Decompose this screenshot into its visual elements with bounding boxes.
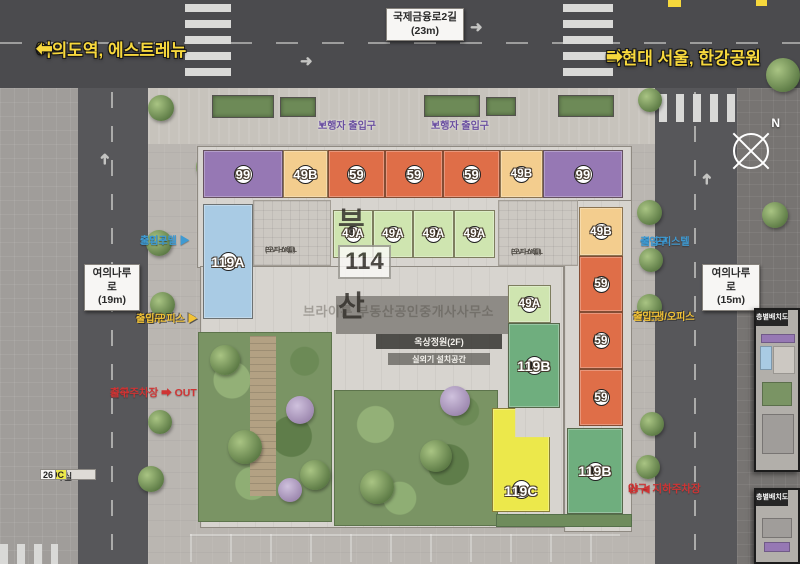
compass: N <box>729 129 773 173</box>
pedestrian-entrance-text: 보행자 출입구 <box>318 121 376 134</box>
right-arrow-icon: ➡ <box>606 44 623 69</box>
road-name-left: 여의나루로 (19m) <box>84 264 140 311</box>
road-name-text: 여의나루로 <box>707 267 755 294</box>
direction-right: 더현대 서울, 한강공원 ➡ <box>606 44 761 69</box>
direction-left: ⬅ 여의도역, 에스트레뉴 <box>36 36 186 61</box>
unit-14[interactable]: 1459 <box>579 256 623 312</box>
mini-block <box>762 414 794 454</box>
unit-type: 119A <box>211 254 245 270</box>
mini-block <box>762 382 792 406</box>
unit-type: 49A <box>423 228 445 240</box>
road-name-text: 여의나루로 <box>89 267 135 294</box>
unit-type: 49A <box>382 228 404 240</box>
mini-block <box>760 346 772 370</box>
unit-type: 59 <box>464 167 479 182</box>
unit-type: 119B <box>517 358 551 374</box>
floor-layout-panel-1[interactable]: 층별배치도 <box>754 308 800 472</box>
entrance-text: 출구 <box>110 387 129 400</box>
mini-block <box>761 334 795 343</box>
unit-15[interactable]: 1559 <box>579 312 623 369</box>
unit-11[interactable]: 1149A <box>413 210 454 258</box>
unit-type: 99 <box>236 167 251 182</box>
unit-3[interactable]: 349B <box>283 150 328 198</box>
unit-type: 49B <box>511 168 533 180</box>
unit-17[interactable]: 17119B <box>567 428 623 514</box>
unit-5[interactable]: 559 <box>385 150 443 198</box>
legend-count: 26 <box>40 469 56 480</box>
unit-16[interactable]: 1659 <box>579 369 623 426</box>
watermark-subtitle: 브라이튼 부동산공인중개사사무소 <box>303 301 517 320</box>
road-width-text: (23m) <box>391 25 459 39</box>
unit-type: 49B <box>590 226 612 238</box>
compass-north-label: N <box>771 116 780 130</box>
floor-layout-panel-2[interactable]: 층별배치도 <box>754 488 800 564</box>
panel-title: 층별배치도 <box>756 310 788 326</box>
watermark-logo: 114 <box>338 245 391 279</box>
direction-right-text: 더현대 서울, 한강공원 <box>606 44 761 69</box>
entrance-text: 입구 <box>628 483 647 496</box>
road-width-text: (19m) <box>89 294 135 308</box>
mini-block <box>773 346 795 374</box>
unit-2[interactable]: 299 <box>203 150 283 198</box>
unit-type: 59 <box>594 392 607 404</box>
left-arrow-icon: ⬅ <box>36 36 53 61</box>
entrance-text: 출입구 <box>633 312 661 325</box>
unit-type: 119C <box>504 483 538 499</box>
unit-type: 49A <box>464 228 486 240</box>
unit-19[interactable]: 19119B <box>508 323 560 408</box>
unit-type: 59 <box>594 278 607 290</box>
road-width-text: (15m) <box>707 294 755 308</box>
unit-6[interactable]: 659 <box>443 150 500 198</box>
unit-type: 49B <box>293 167 317 182</box>
entrance-text: 출입구 <box>136 314 164 327</box>
down-arrow-icon: ▼ <box>431 121 439 131</box>
unit-7[interactable]: 749B <box>500 150 543 198</box>
unit-4[interactable]: 459 <box>328 150 385 198</box>
road-name-text: 국제금융로2길 <box>391 11 459 25</box>
unit-type: 59 <box>349 167 364 182</box>
road-name-top: 국제금융로2길 (23m) <box>386 8 464 41</box>
panel-title: 층별배치도 <box>756 490 788 506</box>
entrance-text: 출입구 <box>640 237 668 250</box>
mini-block <box>762 518 792 538</box>
mini-block <box>764 542 790 552</box>
unit-18[interactable]: 18119C <box>492 408 550 512</box>
down-arrow-icon: ▼ <box>318 121 326 131</box>
unit-12[interactable]: 1249A <box>454 210 495 258</box>
unit-8[interactable]: 899 <box>543 150 623 198</box>
road-name-right: 여의나루로 (15m) <box>702 264 760 311</box>
unit-type: 119B <box>578 463 612 479</box>
unit-type: 49A <box>519 298 541 310</box>
unit-type: 99 <box>576 167 591 182</box>
unit-13[interactable]: 1349B <box>579 207 623 256</box>
unit-type: 59 <box>594 335 607 347</box>
entrance-text: 출입구 <box>140 236 168 249</box>
unit-type: 59 <box>407 167 422 182</box>
direction-left-text: 여의도역, 에스트레뉴 <box>36 36 186 61</box>
pedestrian-entrance-text: 보행자 출입구 <box>431 121 489 134</box>
unit-1[interactable]: 1119A <box>203 204 253 319</box>
site-plan-map: ➜ ➜ ➜ ➜ 옥상정원(2F) 실외기 설치공간 E/V HALL ( <box>0 0 800 564</box>
